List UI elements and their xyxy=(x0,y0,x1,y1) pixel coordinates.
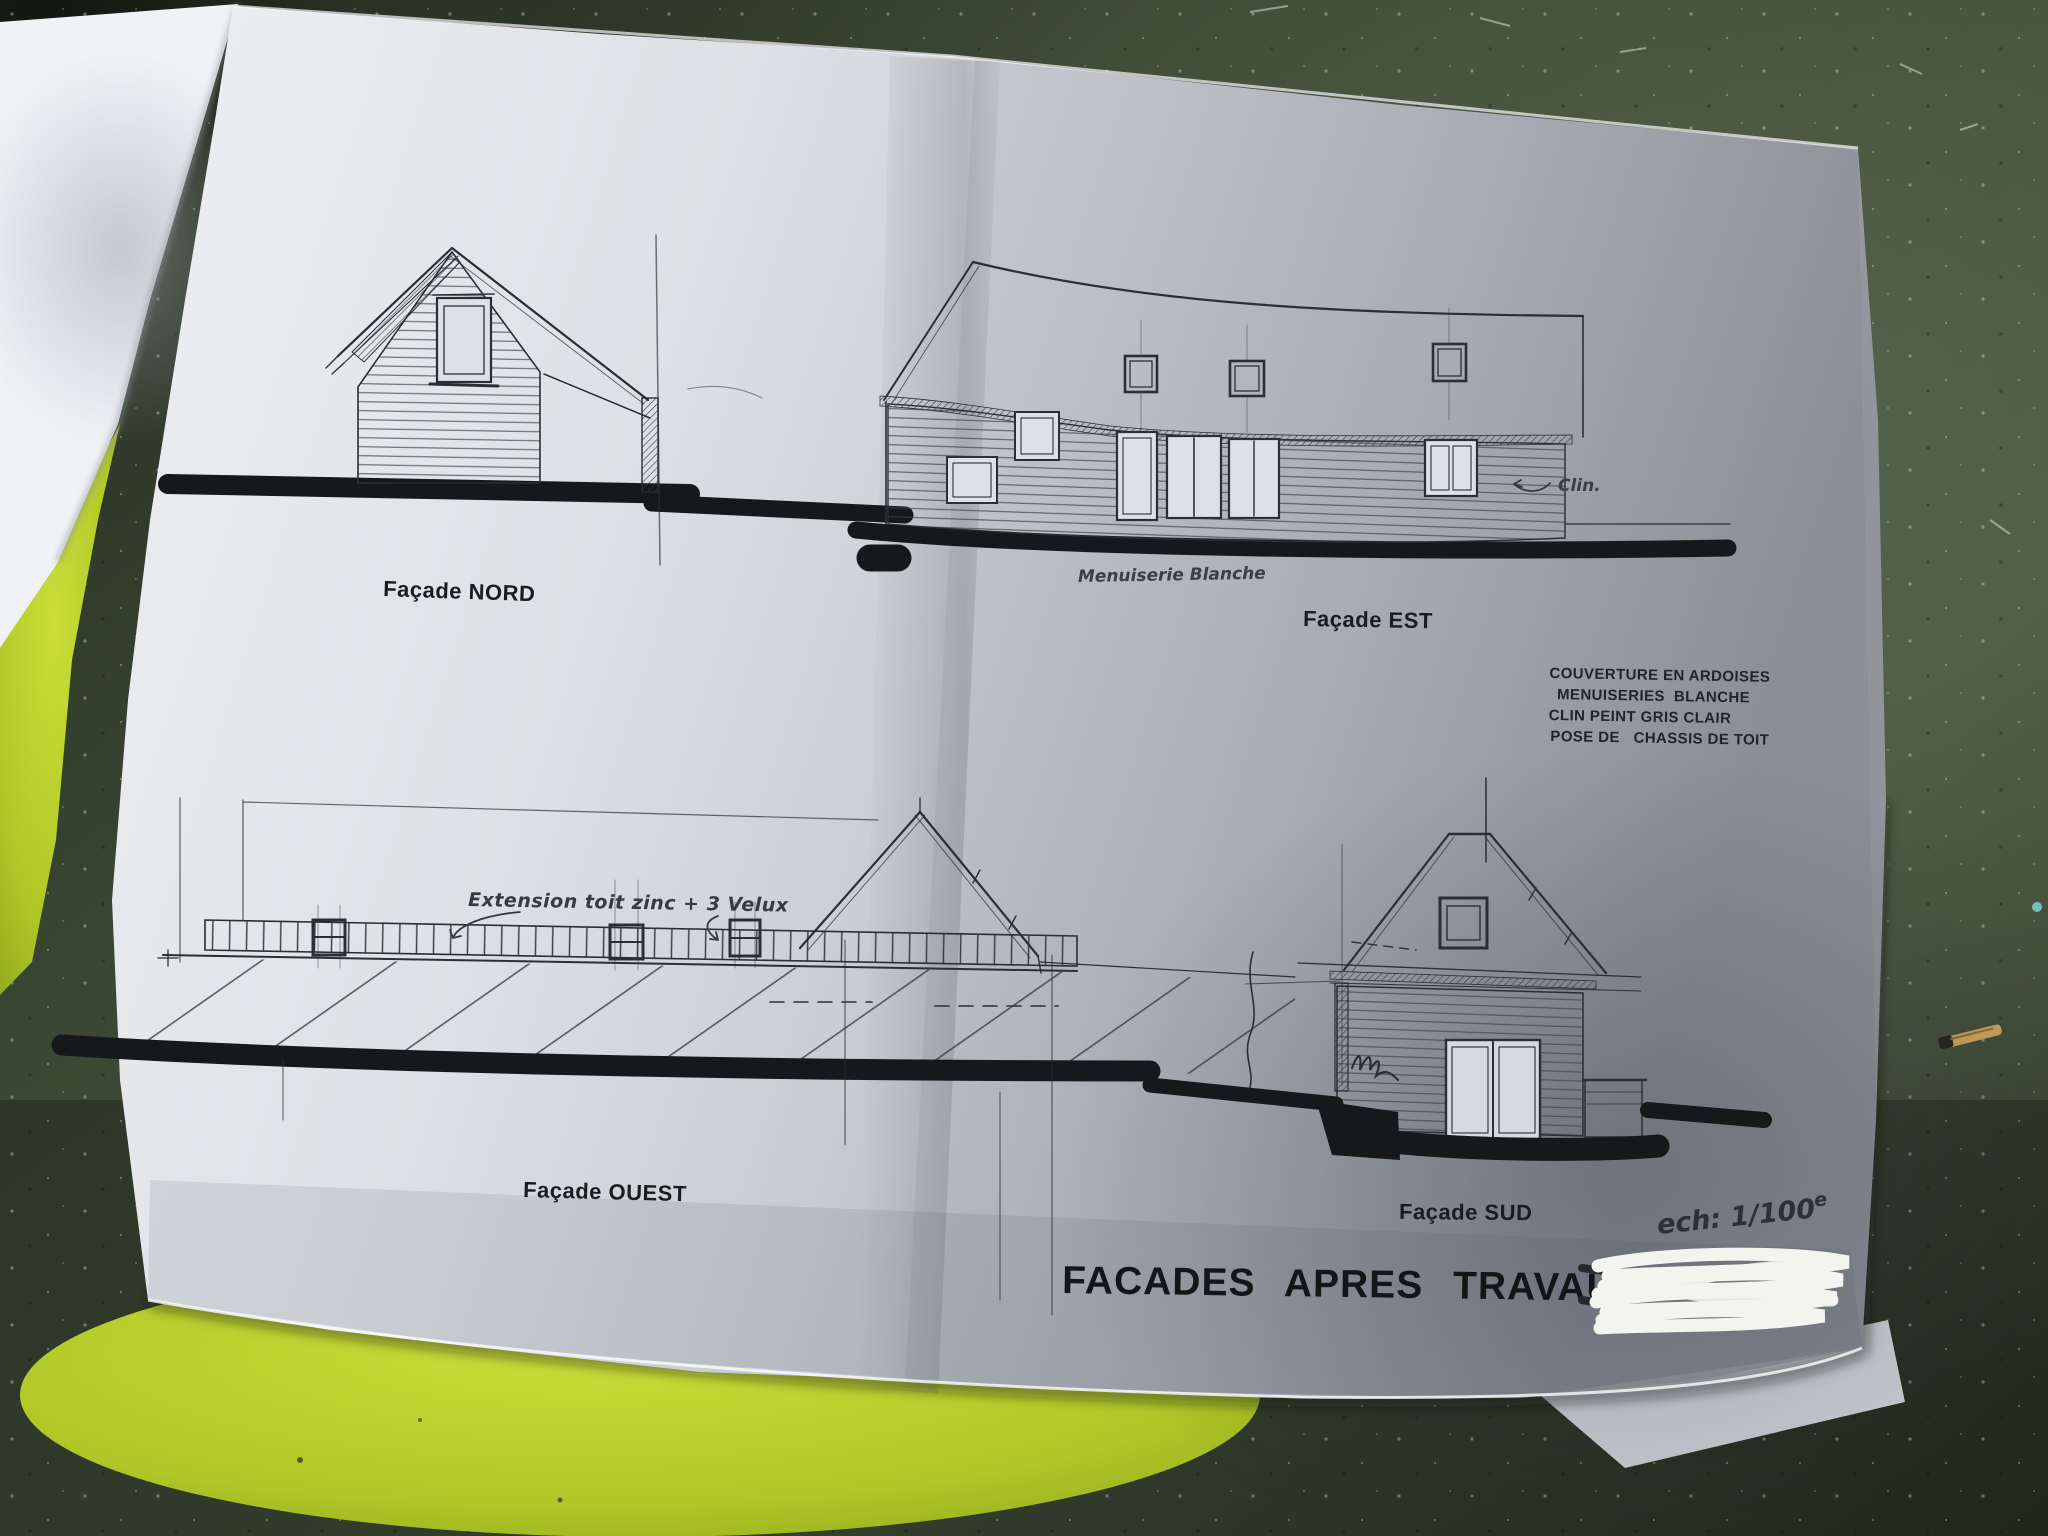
facade-sud-label: Façade SUD xyxy=(1399,1199,1533,1225)
facade-est-label: Façade EST xyxy=(1303,606,1433,633)
page-title: FACADES APRES TRAVAUX xyxy=(1062,1259,1643,1310)
double-window xyxy=(1425,440,1477,496)
hatched-post xyxy=(642,398,658,492)
scale-note-sup: e xyxy=(1813,1188,1828,1211)
photo-scene: Menuiserie Blanche Clin. COUVERTURE EN A… xyxy=(0,0,2048,1536)
door xyxy=(1117,432,1157,520)
ground-bar xyxy=(168,484,690,494)
hatched-corner-post xyxy=(1335,983,1348,1091)
spec-note-line: MENUISERIES BLANCHE xyxy=(1557,686,1750,706)
facade-nord-label: Façade NORD xyxy=(383,576,536,606)
handwriting-menuiserie: Menuiserie Blanche xyxy=(1078,564,1266,587)
photo-canvas: Menuiserie Blanche Clin. COUVERTURE EN A… xyxy=(0,0,2048,1536)
ground-bar xyxy=(1648,1110,1764,1120)
window xyxy=(1229,439,1279,518)
menuiserie-note-text: Menuiserie Blanche xyxy=(1078,564,1266,587)
spec-note-line: CLIN PEINT GRIS CLAIR xyxy=(1549,707,1732,727)
whiteout-scribble xyxy=(1596,1254,1848,1328)
window xyxy=(1015,412,1059,460)
ground-bar xyxy=(1392,1142,1658,1149)
double-glass-door xyxy=(1446,1040,1540,1139)
facade-ouest-label: Façade OUEST xyxy=(523,1177,687,1206)
gable-window xyxy=(430,294,498,386)
window xyxy=(947,457,997,503)
clin-note-text: Clin. xyxy=(1558,476,1601,496)
door-window-pair xyxy=(1167,436,1221,518)
